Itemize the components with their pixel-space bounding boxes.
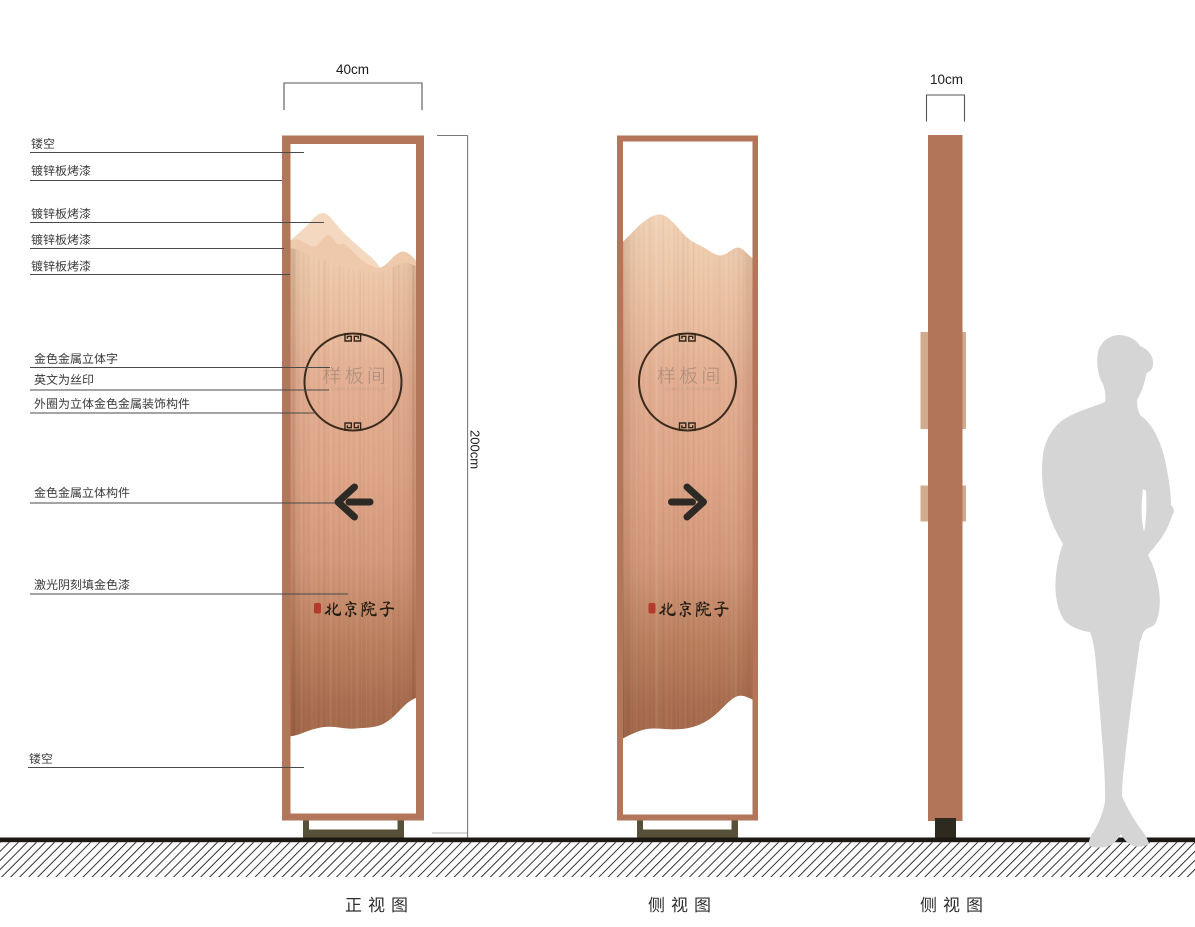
svg-text:SAMPLE ROOM DISPLAY: SAMPLE ROOM DISPLAY [331,387,386,392]
svg-text:40cm: 40cm [336,62,369,77]
svg-text:SAMPLE ROOM DISPLAY: SAMPLE ROOM DISPLAY [666,387,721,392]
svg-text:10cm: 10cm [930,72,963,87]
svg-text:200cm: 200cm [468,430,483,469]
